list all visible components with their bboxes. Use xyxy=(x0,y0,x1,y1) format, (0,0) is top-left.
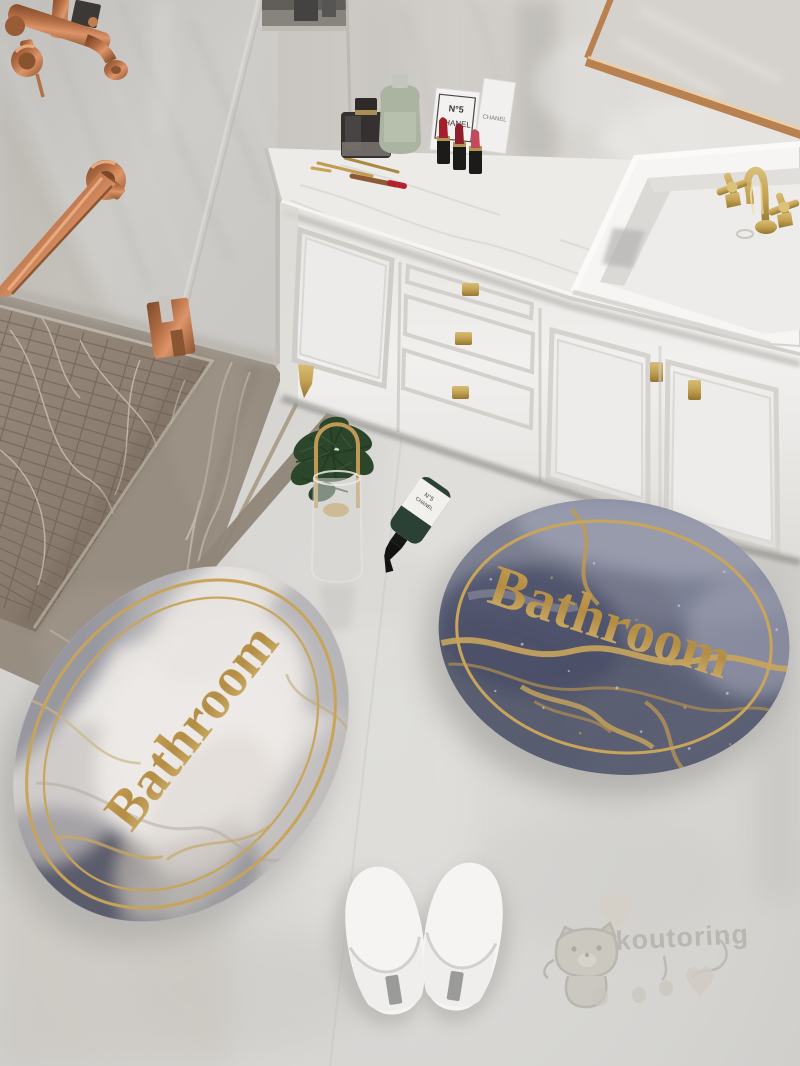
svg-text:N°5: N°5 xyxy=(448,103,464,115)
